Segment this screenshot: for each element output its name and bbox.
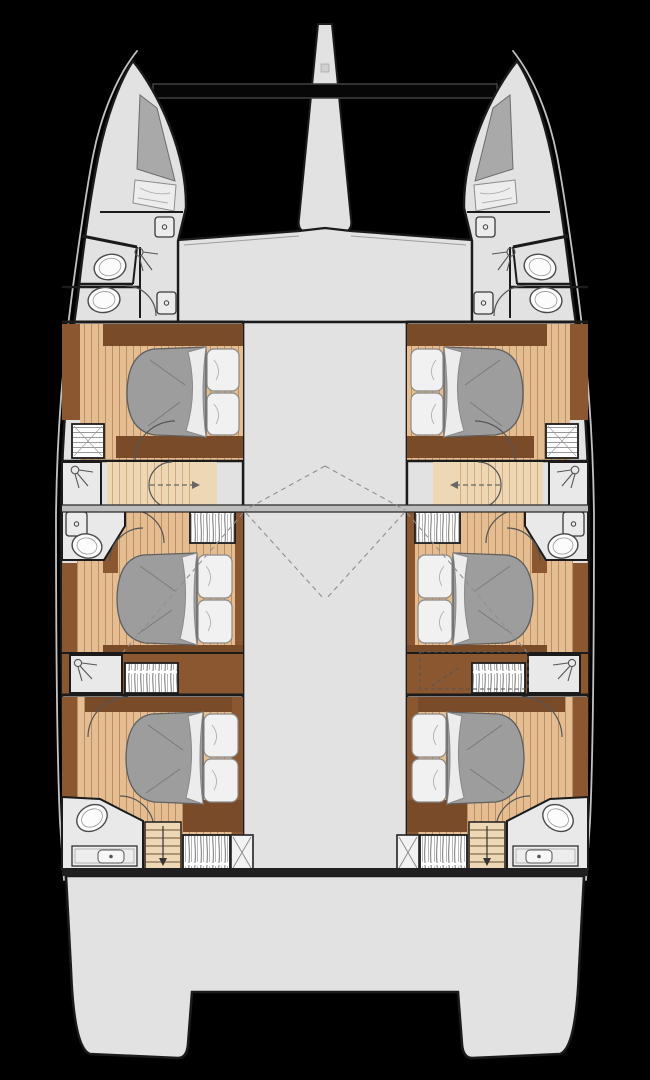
technical-hatch-x xyxy=(231,835,253,870)
pillow xyxy=(198,600,232,643)
pillow xyxy=(204,714,238,757)
wardrobe-hatched xyxy=(190,512,235,543)
vanity-locker xyxy=(66,512,87,536)
mast-fitting xyxy=(321,64,329,72)
pillow xyxy=(207,393,239,435)
shower-cabin xyxy=(70,655,122,693)
catamaran-floorplan xyxy=(0,0,650,1080)
pillow xyxy=(204,759,238,802)
forward-cabin xyxy=(62,324,243,461)
stern-bulkhead xyxy=(62,868,588,876)
wardrobe-hatched xyxy=(125,663,178,693)
saloon-block xyxy=(243,322,407,874)
aft-cabin xyxy=(62,697,243,872)
wardrobe-hatched xyxy=(72,424,104,458)
walkway-step-edge-band xyxy=(62,505,588,512)
technical-hatch-x xyxy=(397,835,419,870)
sink-counter xyxy=(72,846,137,866)
walkway-steps xyxy=(62,461,243,508)
forward-crossbeam-bar xyxy=(153,84,497,98)
companionway-stairs xyxy=(145,822,181,870)
pillow xyxy=(207,349,239,391)
wardrobe-hatched xyxy=(183,835,230,870)
pillow xyxy=(198,555,232,598)
shower-cabin xyxy=(62,462,101,508)
mid-cabin-aft-row xyxy=(62,653,243,695)
floorplan-svg xyxy=(0,0,650,1080)
